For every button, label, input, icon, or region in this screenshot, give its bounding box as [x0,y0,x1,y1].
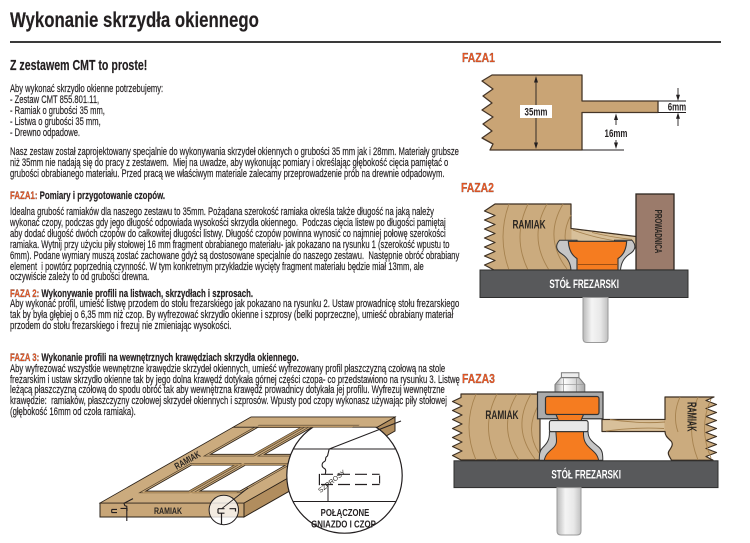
svg-text:35mm: 35mm [525,106,548,119]
svg-text:POŁĄCZONE: POŁĄCZONE [321,507,370,518]
svg-text:RAMIAK: RAMIAK [512,219,546,232]
svg-text:STÓŁ FREZARSKI: STÓŁ FREZARSKI [549,278,619,292]
svg-text:RAMIAK: RAMIAK [684,402,699,432]
svg-text:GNIAZDO I CZOP: GNIAZDO I CZOP [311,518,376,529]
svg-text:RAMIAK: RAMIAK [154,505,182,516]
svg-text:6mm: 6mm [668,101,686,114]
svg-text:PROWADNICA: PROWADNICA [653,210,665,254]
svg-text:STÓŁ FREZARSKI: STÓŁ FREZARSKI [551,468,621,482]
svg-text:RAMIAK: RAMIAK [485,410,519,423]
svg-text:16mm: 16mm [605,128,628,141]
